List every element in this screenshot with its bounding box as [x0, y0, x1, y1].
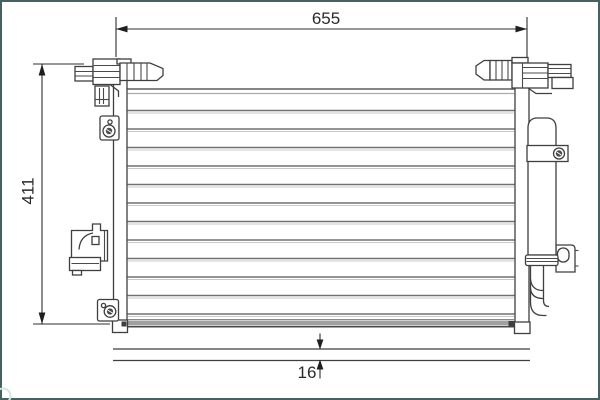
core-bottom-edge — [128, 320, 514, 327]
nozzle-tip — [476, 61, 490, 81]
drier-cylinder — [528, 118, 556, 255]
core-side-view — [113, 349, 530, 361]
right-header-tank — [515, 84, 529, 332]
arrowhead-right — [516, 26, 528, 33]
side-bracket-left — [70, 224, 108, 275]
dimension-depth-label: 16 — [298, 363, 317, 382]
arrowhead-left — [116, 26, 128, 33]
drier-collar — [526, 255, 559, 266]
fitting-right-tab — [548, 65, 571, 78]
core-top-edge — [128, 89, 515, 94]
dimension-depth: 16 — [298, 334, 324, 383]
fitting-top-tab — [512, 58, 528, 64]
bolt-plate-upper-left — [100, 116, 119, 140]
arrowhead-down — [317, 340, 324, 350]
fitting-flange-edge — [528, 88, 552, 94]
top-right-pipe-fitting — [476, 58, 573, 94]
dimension-width: 655 — [116, 9, 527, 57]
fitting-lower-block — [95, 86, 109, 106]
fitting-lower-block — [552, 78, 573, 89]
bolt-plate-lower-left — [98, 300, 119, 322]
dimension-height-label: 411 — [19, 177, 38, 204]
core-tube-rows — [128, 111, 515, 317]
mounting-foot-left — [113, 320, 128, 333]
dimension-width-label: 655 — [312, 9, 340, 28]
receiver-drier — [526, 118, 579, 316]
drier-outlet-pipe — [531, 266, 550, 316]
arrowhead-up — [39, 64, 46, 76]
bracket-foot-tab — [73, 271, 82, 276]
arrowhead-down — [39, 313, 46, 325]
drier-clamp — [527, 146, 568, 162]
drawing-canvas: 655 411 16 — [0, 0, 600, 400]
condenser-assembly — [70, 58, 579, 334]
drier-bottom-bracket — [556, 245, 579, 272]
condenser-technical-drawing: 655 411 16 — [0, 0, 600, 400]
